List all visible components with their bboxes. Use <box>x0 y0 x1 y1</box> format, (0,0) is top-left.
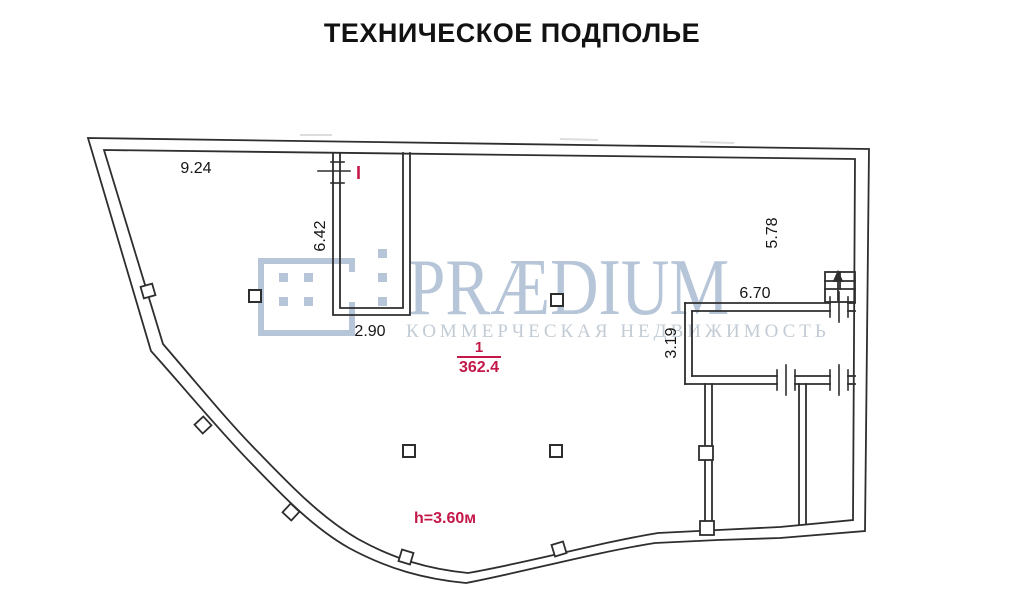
watermark-logo-icon <box>261 249 387 333</box>
floor-plan-drawing <box>0 0 1024 595</box>
outer-wall <box>88 138 869 583</box>
wall-column <box>195 417 212 434</box>
column <box>550 445 562 457</box>
outer-wall-inner-line <box>104 150 855 573</box>
watermark-logo-dot <box>378 249 387 258</box>
watermark-logo-dot <box>304 273 313 282</box>
shaft-opening-mark <box>318 162 350 183</box>
shaft-inner-line <box>340 153 403 308</box>
watermark-logo-dot <box>304 297 313 306</box>
watermark-logo-dot <box>279 273 288 282</box>
watermark-logo-dot <box>378 273 387 282</box>
watermark-logo-dot <box>378 297 387 306</box>
shaft-outer-line <box>333 153 410 315</box>
watermark-logo-dot <box>279 297 288 306</box>
wall-column <box>399 550 414 565</box>
pilaster-column <box>700 521 714 535</box>
floor-plan-page: ТЕХНИЧЕСКОЕ ПОДПОЛЬЕ PRÆDIUM КОММЕРЧЕСКА… <box>0 0 1024 595</box>
column <box>403 445 415 457</box>
column <box>249 290 261 302</box>
pilaster-column <box>699 446 713 460</box>
column <box>551 294 563 306</box>
wall-column <box>141 284 156 299</box>
partition-walls <box>699 384 806 535</box>
scan-dash <box>700 142 734 143</box>
wall-column <box>283 504 300 521</box>
wall-column <box>552 542 567 557</box>
shaft <box>318 153 410 315</box>
outer-wall-outer-line <box>88 138 869 583</box>
scan-dash <box>560 139 598 140</box>
door-marks <box>777 292 848 395</box>
